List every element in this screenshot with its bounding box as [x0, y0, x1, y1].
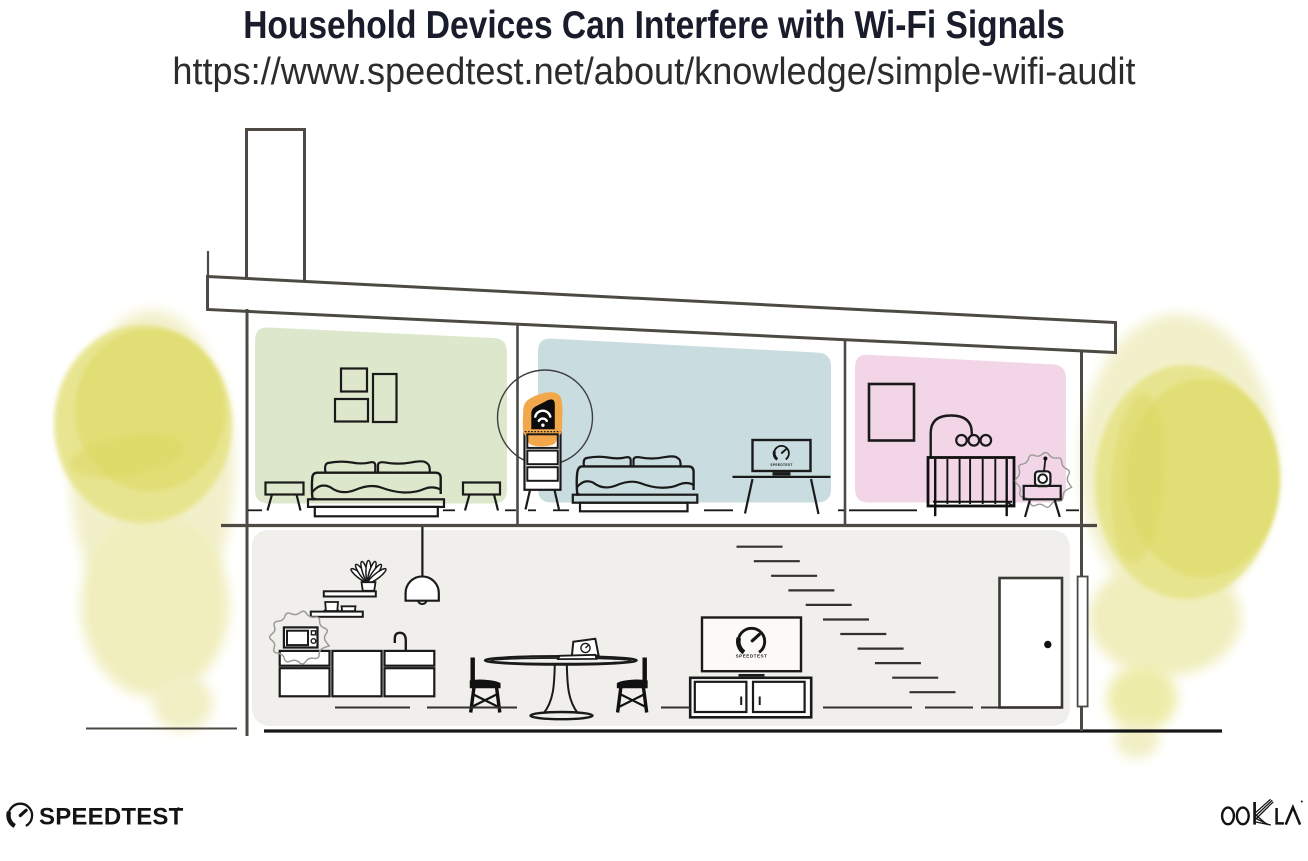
svg-text:SPEEDTEST: SPEEDTEST: [39, 804, 184, 831]
svg-text:SPEEDTEST: SPEEDTEST: [736, 654, 768, 659]
svg-text:SPEEDTEST: SPEEDTEST: [770, 463, 792, 467]
